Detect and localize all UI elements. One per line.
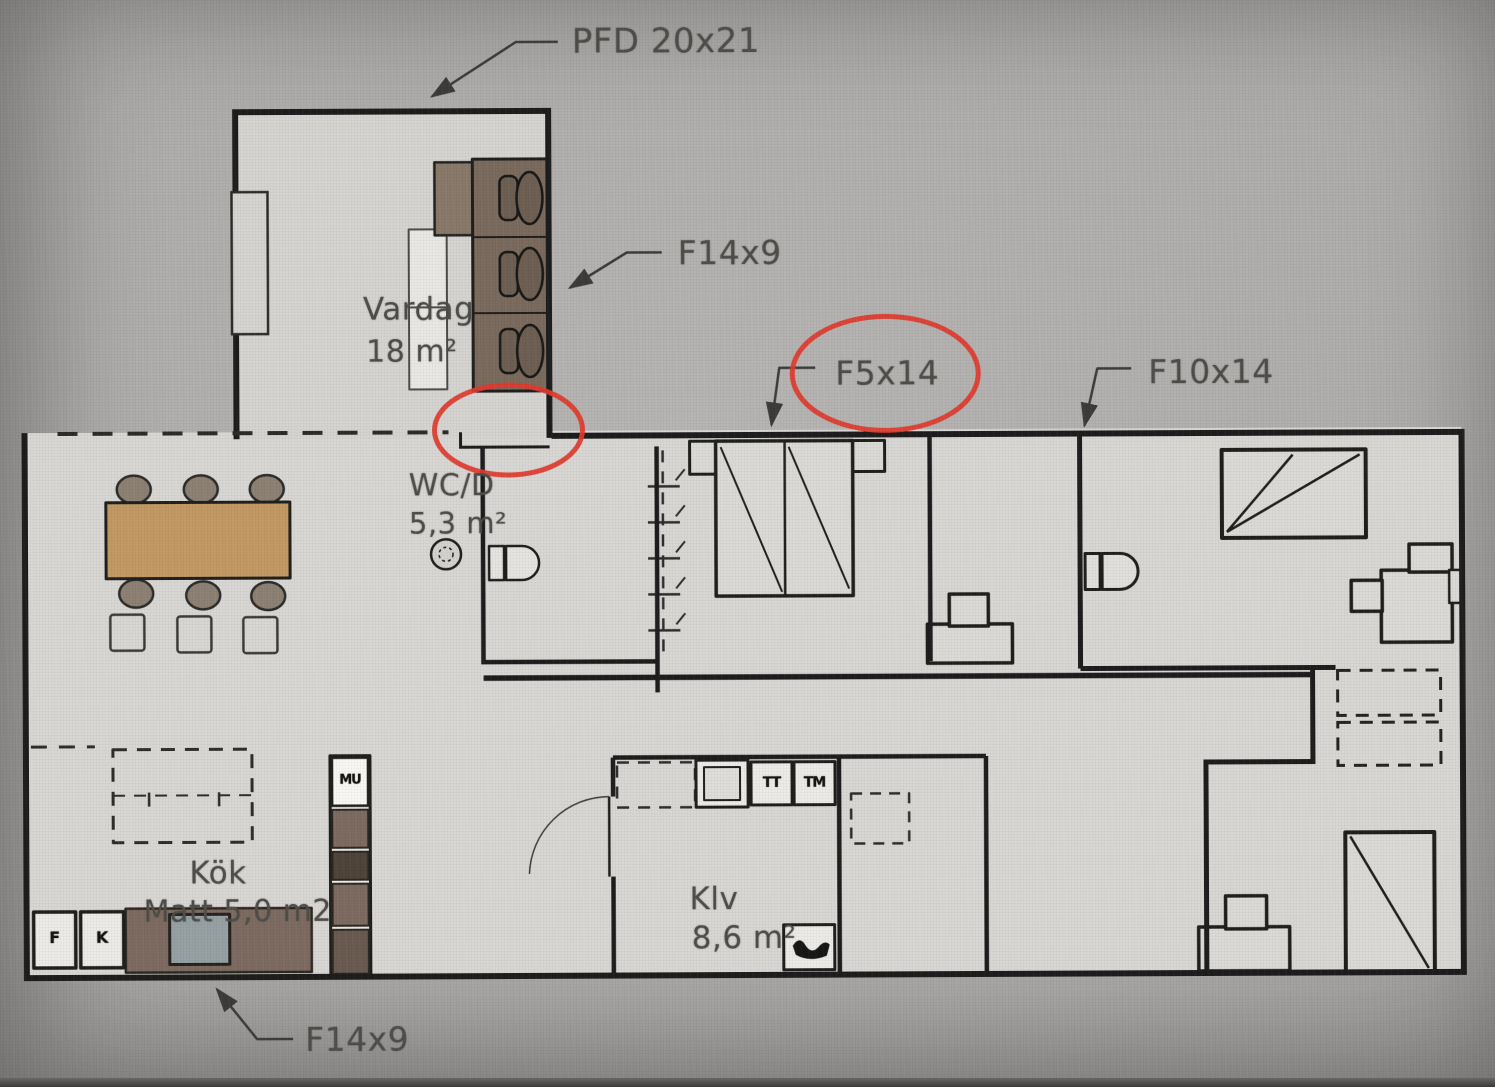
f10x14-arrow [1084,368,1131,425]
f14x9-bottom-arrow [217,989,293,1039]
floor-plan: PFD 20x21 F14x9 F5x14 F10x14 F14x9 Varda… [0,0,1495,1087]
pfd-arrow [432,42,558,97]
floor-plan-drawing [0,0,1495,1087]
f14x9-top-arrow [570,252,662,287]
floor-plan-photo: PFD 20x21 F14x9 F5x14 F10x14 F14x9 Varda… [0,0,1495,1087]
toilet-right [1085,553,1138,589]
screen-bezel [0,1078,1495,1087]
red-circle-f5x14 [792,316,978,431]
